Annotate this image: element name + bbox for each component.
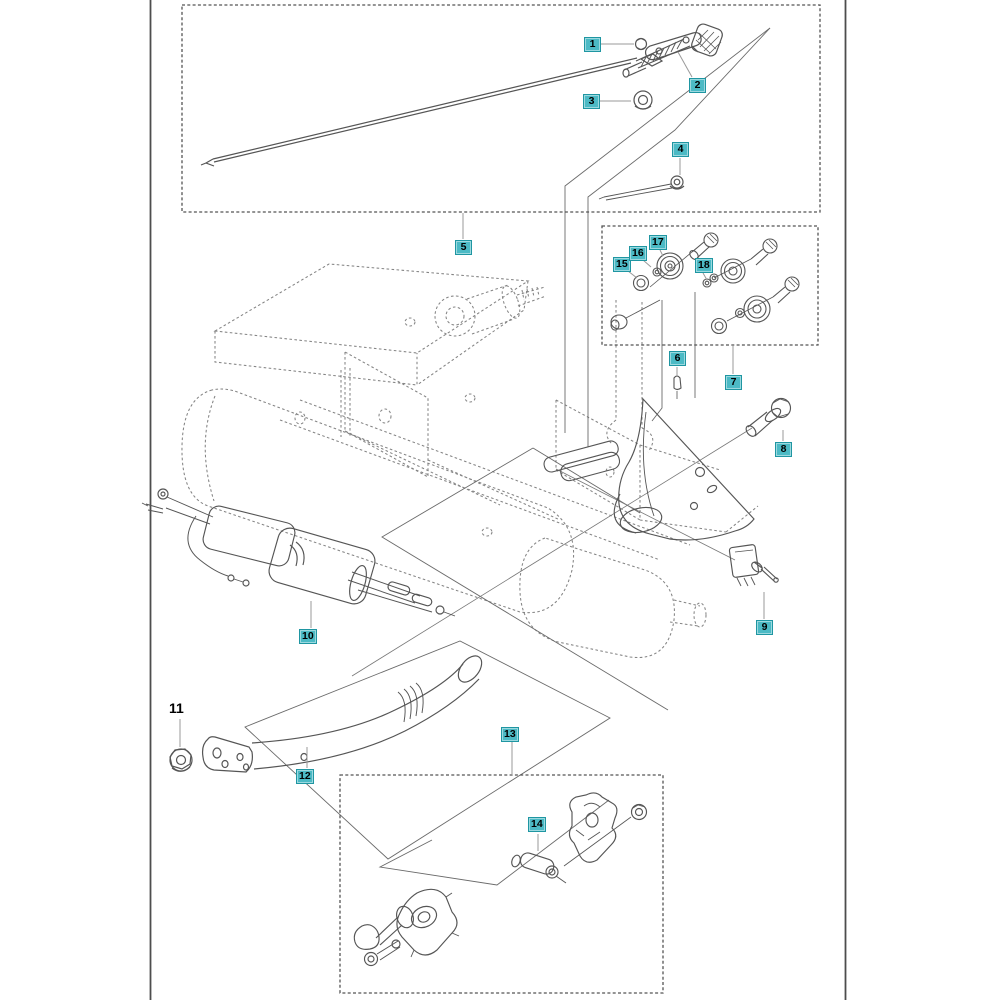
wedge-top-box-a bbox=[565, 28, 770, 433]
frame-diagonal-1 bbox=[345, 431, 500, 505]
shaft-boss-hub bbox=[446, 307, 464, 325]
swivel-stud bbox=[556, 876, 566, 883]
anchor-tab-1 bbox=[542, 439, 619, 473]
lower-clamp-scallops bbox=[411, 893, 459, 957]
screw-4-hub bbox=[674, 179, 680, 185]
callout-6[interactable]: 6 bbox=[669, 351, 686, 366]
grommet-3-outer bbox=[634, 91, 652, 109]
locator-wedges bbox=[245, 28, 770, 885]
shaft-cylinder bbox=[467, 285, 514, 334]
leader-15 bbox=[628, 271, 637, 278]
callout-7[interactable]: 7 bbox=[725, 375, 742, 390]
ferrule-end bbox=[623, 69, 629, 77]
deck-rail-2 bbox=[300, 400, 690, 545]
pulley-3-hub bbox=[753, 305, 761, 313]
wedge-harness-top bbox=[382, 448, 668, 710]
leader-2 bbox=[678, 52, 692, 77]
right-drum-tip bbox=[694, 603, 706, 627]
anchor-tab-2 bbox=[559, 451, 621, 483]
swivel-end bbox=[510, 854, 522, 868]
lower-clamp-plate bbox=[397, 889, 457, 955]
hanging-wire bbox=[188, 516, 228, 576]
solenoid-body bbox=[201, 504, 297, 568]
callout-11: 11 bbox=[169, 701, 184, 715]
shaft-rod bbox=[517, 287, 546, 306]
throttle-detail-box bbox=[182, 5, 820, 212]
callout-9[interactable]: 9 bbox=[756, 620, 773, 635]
lock-nut-1-facets bbox=[636, 39, 646, 50]
shaft-boss bbox=[435, 296, 475, 336]
detail-boxes bbox=[182, 5, 820, 993]
wire-end-ring-1 bbox=[228, 575, 234, 581]
cable-housing bbox=[636, 39, 690, 68]
bracket-slot bbox=[706, 484, 718, 494]
clamp-nut-bore bbox=[636, 809, 643, 816]
callout-12[interactable]: 12 bbox=[296, 769, 314, 784]
nut-15-hub bbox=[637, 279, 645, 287]
switch-face-line bbox=[735, 550, 753, 552]
out-terminal-ring bbox=[436, 606, 444, 614]
callout-18[interactable]: 18 bbox=[695, 258, 713, 273]
lever-hole-2 bbox=[683, 37, 689, 43]
parts-diagram-page: { "diagram": { "kind": "exploded-parts-d… bbox=[0, 0, 1000, 1000]
chassis-outline bbox=[182, 264, 758, 658]
clamp-bolt-head bbox=[365, 953, 378, 966]
diagram-canvas bbox=[0, 0, 1000, 1000]
switch-terminals bbox=[737, 577, 755, 586]
handlebar-12 bbox=[203, 652, 487, 772]
pulley-17-groove bbox=[661, 257, 680, 276]
washer-18a-hub bbox=[705, 281, 709, 285]
wedge-pulley-a bbox=[652, 300, 662, 421]
bracket-fold bbox=[643, 412, 654, 516]
flange-bolt-8 bbox=[744, 399, 790, 439]
leader-lines bbox=[180, 44, 783, 851]
rear-pole bbox=[616, 300, 642, 428]
callout-1[interactable]: 1 bbox=[584, 37, 601, 52]
socket-bolt-axis bbox=[626, 300, 660, 318]
wedge-handlebar bbox=[245, 641, 610, 859]
callout-3[interactable]: 3 bbox=[583, 94, 600, 109]
mount-bracket bbox=[614, 399, 754, 540]
ring-terminal bbox=[158, 489, 168, 499]
deck-hole-3 bbox=[482, 528, 492, 536]
mount-hole-3 bbox=[237, 754, 243, 761]
tube-bottom-edge bbox=[254, 679, 479, 769]
axis-lines bbox=[352, 428, 752, 676]
mount-hole-1 bbox=[213, 748, 221, 758]
deck-hole-2 bbox=[465, 394, 475, 402]
bolt-1-shaft bbox=[692, 242, 709, 258]
switch-bushing bbox=[750, 560, 764, 574]
screw-4-head bbox=[671, 176, 683, 188]
nut-3-hub bbox=[715, 322, 723, 330]
callout-17[interactable]: 17 bbox=[649, 235, 667, 250]
switch-body bbox=[729, 544, 759, 577]
tube-hole bbox=[301, 754, 307, 761]
grommet-3-inner bbox=[639, 96, 648, 105]
deck-hole-4 bbox=[606, 467, 614, 477]
right-frame bbox=[556, 400, 758, 532]
cable-rod bbox=[213, 58, 637, 162]
callout-8[interactable]: 8 bbox=[775, 442, 792, 457]
toggle-switch-9 bbox=[729, 544, 778, 586]
clamp-bolt-hub bbox=[368, 956, 374, 962]
pulley-17-hub bbox=[665, 261, 675, 271]
nut-11-bore bbox=[177, 756, 186, 765]
bolt-8-hex bbox=[772, 399, 789, 417]
screw-4-shaft bbox=[599, 184, 672, 200]
callout-10[interactable]: 10 bbox=[299, 629, 317, 644]
pulley-set-3 bbox=[712, 277, 800, 334]
clamp-half-bore bbox=[586, 813, 598, 827]
washer-18a bbox=[703, 279, 711, 287]
callout-5[interactable]: 5 bbox=[455, 240, 472, 255]
callout-4[interactable]: 4 bbox=[672, 142, 689, 157]
bolt-8-shaft bbox=[748, 412, 773, 436]
frame-diagonal-2 bbox=[428, 460, 560, 520]
callout-16[interactable]: 16 bbox=[629, 246, 647, 261]
bracket-hole-2 bbox=[691, 503, 698, 510]
wire-end-ring-2 bbox=[243, 580, 249, 586]
pin-6 bbox=[674, 376, 681, 390]
bolt-1-axis bbox=[650, 252, 692, 287]
clamp-kit bbox=[354, 793, 646, 966]
throttle-cable-assembly bbox=[201, 22, 724, 200]
callout-14[interactable]: 14 bbox=[528, 817, 546, 832]
clamp-detail-box bbox=[340, 775, 663, 993]
clamp-half-detail bbox=[576, 803, 600, 840]
bolt-8-flange bbox=[763, 406, 783, 424]
deck-hole-1 bbox=[295, 412, 305, 424]
lead-wires bbox=[166, 497, 213, 524]
wire-end-link bbox=[234, 579, 243, 582]
nut-3 bbox=[712, 319, 727, 334]
left-drum bbox=[182, 389, 574, 613]
mount-hole-4 bbox=[244, 764, 249, 770]
ring-terminal-hole bbox=[161, 492, 165, 496]
mount-hole-2 bbox=[222, 761, 228, 768]
wedge-top-box-b bbox=[588, 28, 770, 447]
deck-hole-5 bbox=[405, 318, 415, 326]
callout-2[interactable]: 2 bbox=[689, 78, 706, 93]
bolt8-axis bbox=[352, 428, 752, 676]
callout-13[interactable]: 13 bbox=[501, 727, 519, 742]
mid-bracket-hole bbox=[379, 409, 391, 423]
cable-tip-hook bbox=[201, 159, 214, 166]
lower-clamp-hub bbox=[416, 910, 431, 924]
pulley-17-bore bbox=[668, 264, 672, 268]
right-drum bbox=[520, 538, 675, 658]
spade-terminal bbox=[142, 503, 163, 513]
bracket-hole-1 bbox=[696, 468, 705, 477]
nut-11-hex bbox=[170, 749, 191, 769]
out-terminal-2 bbox=[411, 593, 432, 606]
tension-knob bbox=[354, 925, 379, 950]
engine-deck-front bbox=[215, 331, 417, 385]
hex-nut-11 bbox=[170, 749, 192, 771]
leader-17 bbox=[660, 250, 663, 256]
left-drum-cap bbox=[205, 396, 215, 501]
nut-15 bbox=[634, 276, 649, 291]
tube-top-edge bbox=[252, 664, 463, 743]
shaft-end bbox=[499, 284, 524, 321]
collar-ribs bbox=[398, 683, 423, 722]
leader-16 bbox=[643, 260, 651, 267]
